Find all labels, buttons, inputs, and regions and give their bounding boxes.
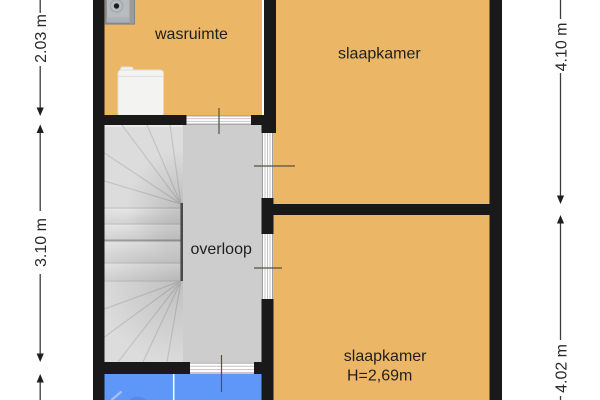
- svg-text:3.10 m: 3.10 m: [33, 218, 50, 267]
- svg-text:slaapkamer: slaapkamer: [344, 348, 427, 365]
- svg-text:wasruimte: wasruimte: [154, 26, 228, 43]
- svg-text:H=2,69m: H=2,69m: [347, 368, 412, 385]
- svg-text:4.10 m: 4.10 m: [554, 22, 571, 71]
- svg-text:slaapkamer: slaapkamer: [338, 46, 421, 63]
- svg-text:overloop: overloop: [191, 241, 252, 258]
- svg-text:2.03 m: 2.03 m: [33, 14, 50, 63]
- svg-text:4.02 m: 4.02 m: [554, 344, 571, 393]
